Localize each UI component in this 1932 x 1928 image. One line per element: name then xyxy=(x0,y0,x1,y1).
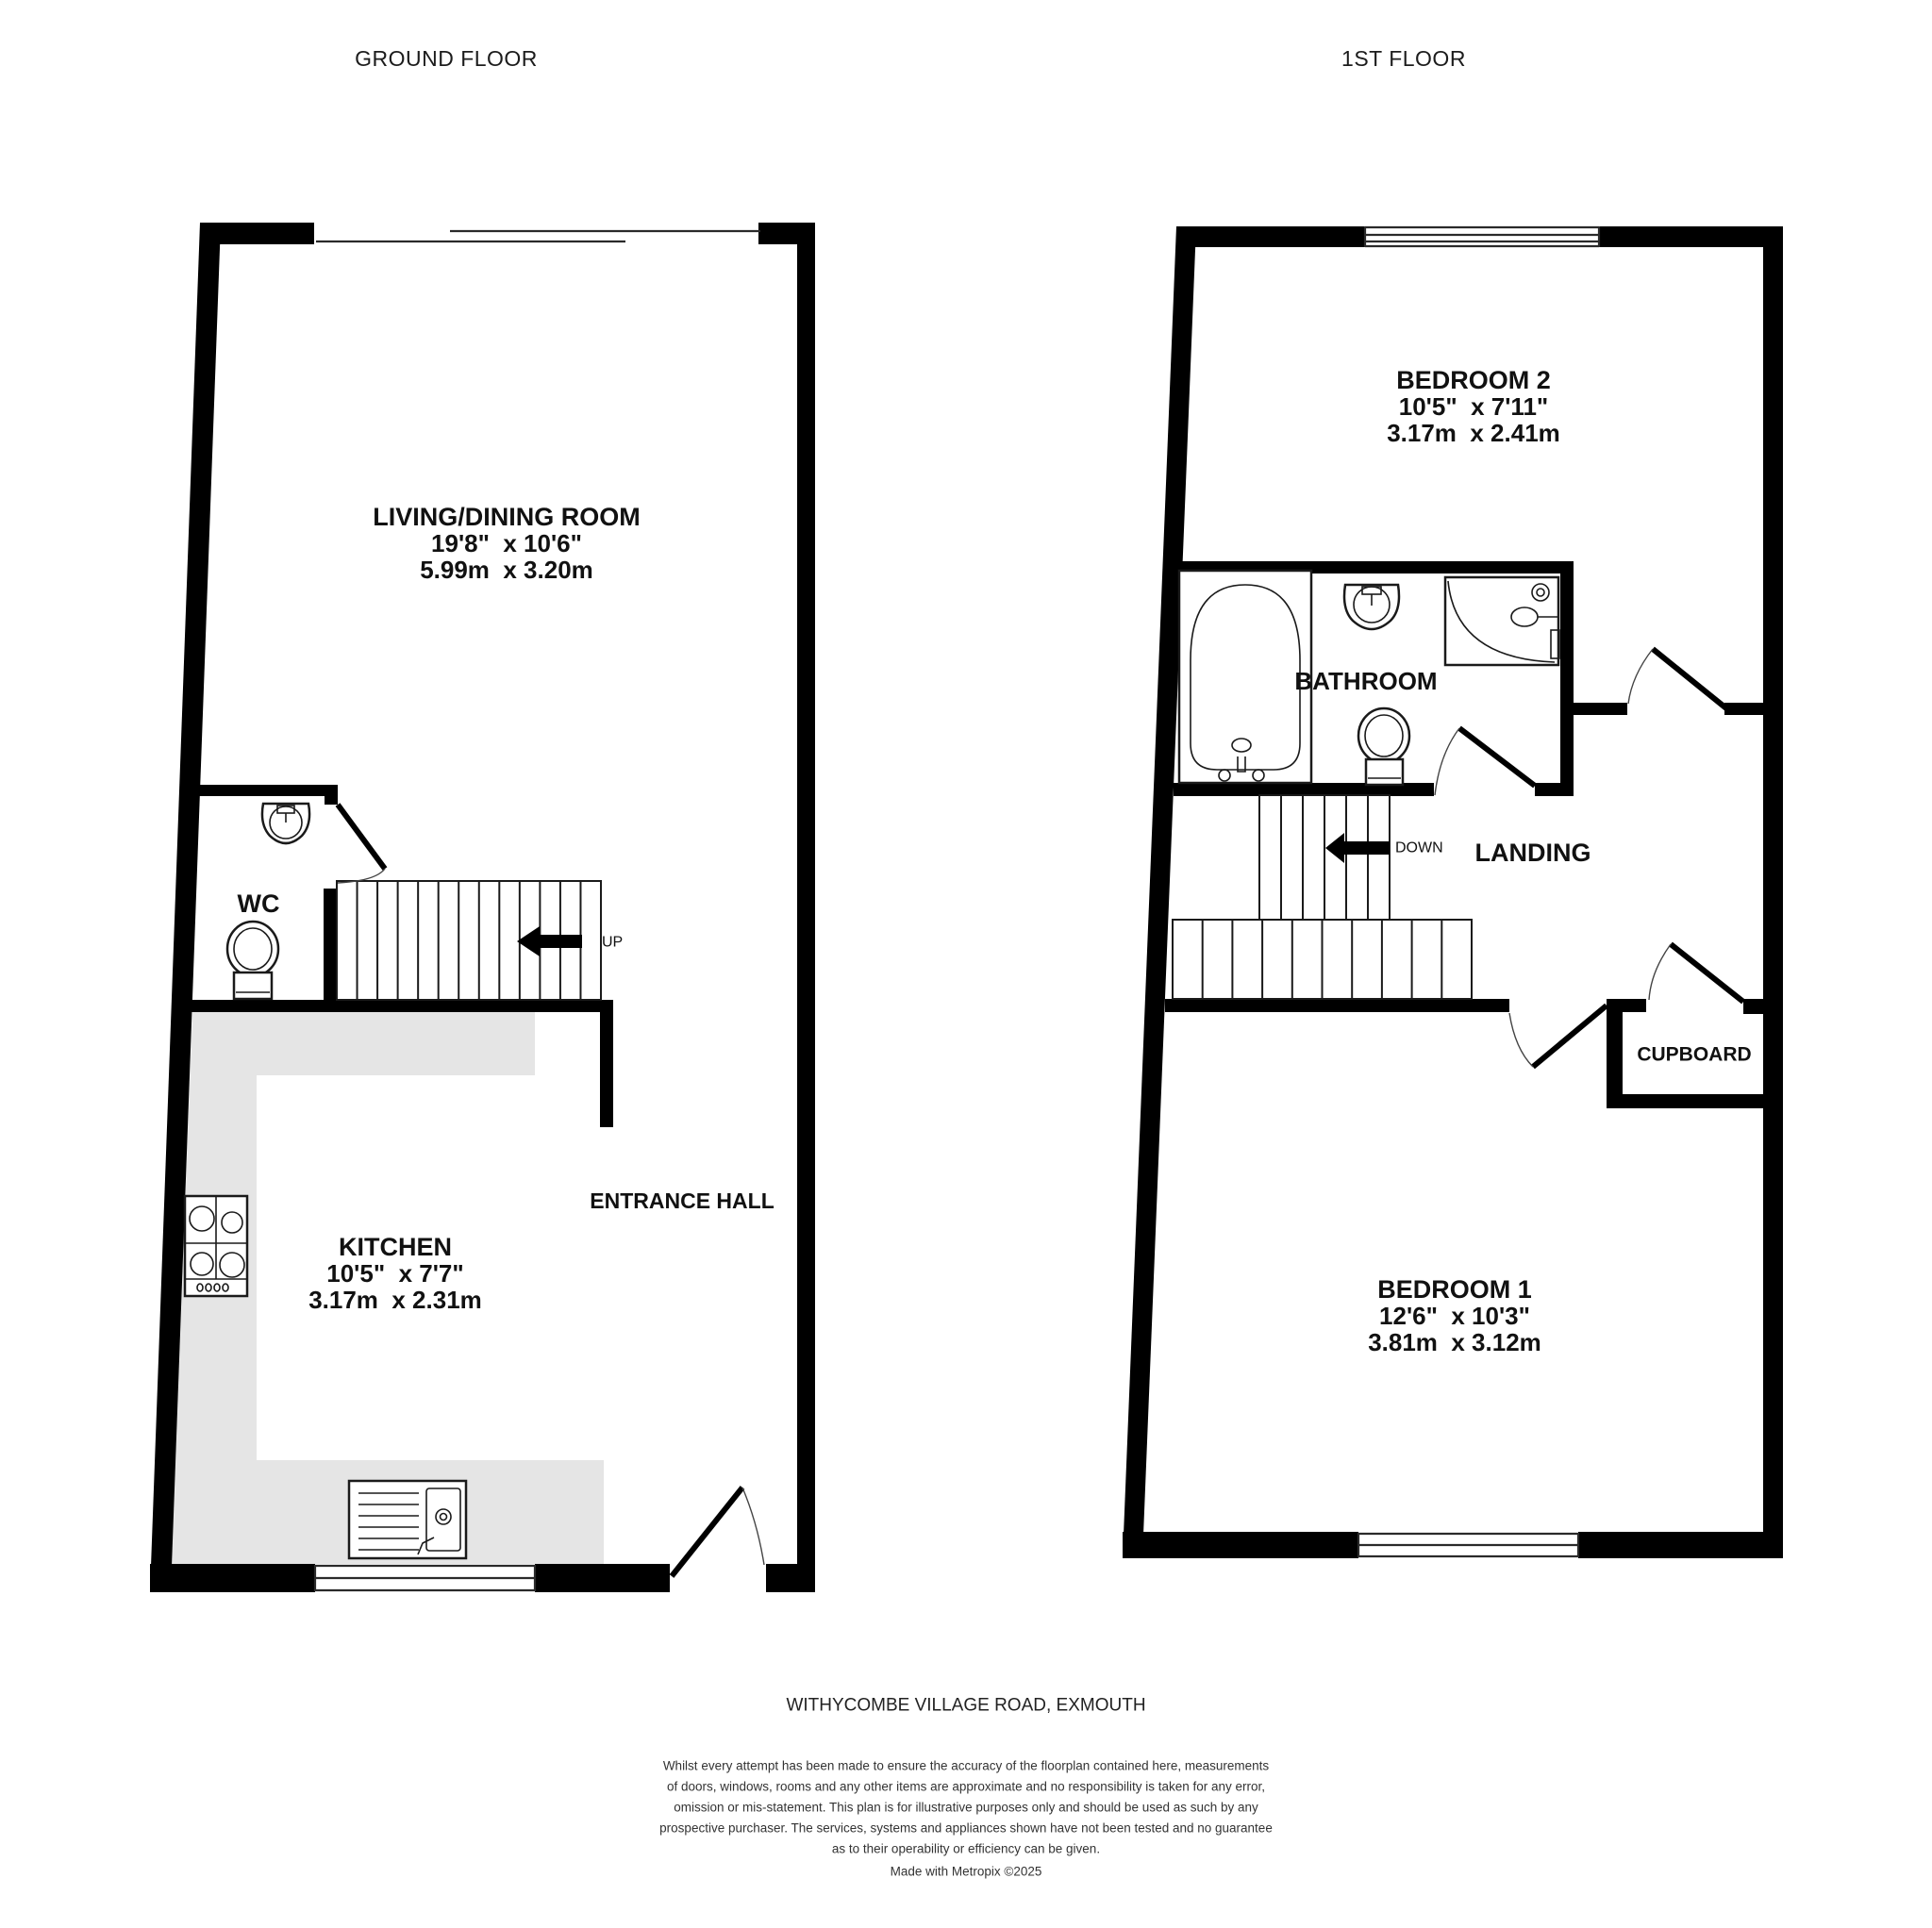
ground-floor-title: GROUND FLOOR xyxy=(355,46,538,71)
kitchen-sink xyxy=(349,1481,466,1558)
disclaimer-line: as to their operability or efficiency ca… xyxy=(832,1842,1100,1856)
svg-text:3.81m x 3.12m: 3.81m x 3.12m xyxy=(1368,1328,1541,1356)
disclaimer-line: omission or mis-statement. This plan is … xyxy=(674,1801,1258,1815)
bedroom2-door xyxy=(1628,649,1726,708)
living-dining-label: LIVING/DINING ROOM 19'8" x 10'6" 5.99m x… xyxy=(373,503,641,584)
bathroom-door xyxy=(1435,728,1535,795)
svg-text:12'6" x 10'3": 12'6" x 10'3" xyxy=(1379,1302,1530,1330)
disclaimer-line: Whilst every attempt has been made to en… xyxy=(663,1759,1270,1773)
bathroom-basin xyxy=(1344,585,1399,629)
svg-text:LIVING/DINING ROOM: LIVING/DINING ROOM xyxy=(373,503,641,531)
down-arrow-icon xyxy=(1325,833,1390,863)
wc-basin xyxy=(262,804,309,843)
stairs-down-label: DOWN xyxy=(1395,840,1443,856)
kitchen-hob xyxy=(185,1196,247,1296)
entrance-door xyxy=(672,1488,764,1576)
landing-label: LANDING xyxy=(1475,839,1591,867)
svg-text:KITCHEN: KITCHEN xyxy=(339,1233,452,1261)
cupboard-door xyxy=(1649,944,1743,1002)
bathroom-label: BATHROOM xyxy=(1294,667,1437,695)
bedroom1-door xyxy=(1509,1006,1607,1067)
svg-text:BEDROOM 2: BEDROOM 2 xyxy=(1396,366,1551,394)
living-room-window xyxy=(316,231,760,241)
bedroom2-label: BEDROOM 2 10'5" x 7'11" 3.17m x 2.41m xyxy=(1387,366,1560,447)
svg-text:3.17m x 2.31m: 3.17m x 2.31m xyxy=(308,1286,482,1314)
bathroom-toilet xyxy=(1358,708,1409,785)
svg-text:3.17m x 2.41m: 3.17m x 2.41m xyxy=(1387,419,1560,447)
kitchen-window xyxy=(315,1565,535,1591)
wc-toilet xyxy=(227,922,278,999)
wc-room: WC xyxy=(227,804,385,999)
bedroom1-window xyxy=(1358,1533,1578,1557)
svg-text:10'5" x 7'11": 10'5" x 7'11" xyxy=(1399,392,1548,421)
first-floor-plan: 1ST FLOOR xyxy=(1123,46,1783,1558)
up-arrow-icon xyxy=(517,926,582,956)
entrance-hall-label: ENTRANCE HALL xyxy=(590,1188,774,1213)
svg-text:BEDROOM 1: BEDROOM 1 xyxy=(1377,1275,1532,1304)
svg-text:19'8" x 10'6": 19'8" x 10'6" xyxy=(431,529,582,557)
wc-label: WC xyxy=(238,889,280,918)
bedroom1-label: BEDROOM 1 12'6" x 10'3" 3.81m x 3.12m xyxy=(1368,1275,1541,1356)
stairs-down: DOWN xyxy=(1173,795,1472,999)
stairs-up-label: UP xyxy=(602,935,623,951)
svg-text:5.99m x 3.20m: 5.99m x 3.20m xyxy=(420,556,593,584)
disclaimer-line: of doors, windows, rooms and any other i… xyxy=(667,1780,1265,1794)
corner-shower xyxy=(1445,577,1559,665)
svg-text:10'5" x 7'7": 10'5" x 7'7" xyxy=(326,1259,463,1288)
floorplan-canvas: GROUND FLOOR xyxy=(0,0,1932,1928)
credit-line: Made with Metropix ©2025 xyxy=(891,1865,1042,1879)
wc-door xyxy=(338,805,385,883)
footer: WITHYCOMBE VILLAGE ROAD, EXMOUTH Whilst … xyxy=(659,1696,1273,1879)
disclaimer-line: prospective purchaser. The services, sys… xyxy=(659,1821,1273,1836)
address-line: WITHYCOMBE VILLAGE ROAD, EXMOUTH xyxy=(786,1696,1145,1716)
ground-floor-plan: GROUND FLOOR xyxy=(150,46,815,1592)
kitchen-label: KITCHEN 10'5" x 7'7" 3.17m x 2.31m xyxy=(308,1233,482,1314)
stairs-up: UP xyxy=(337,881,623,1000)
bedroom2-window xyxy=(1365,226,1599,247)
first-floor-title: 1ST FLOOR xyxy=(1341,46,1466,71)
cupboard-label: CUPBOARD xyxy=(1637,1044,1751,1066)
bathroom-bathtub xyxy=(1179,571,1311,783)
